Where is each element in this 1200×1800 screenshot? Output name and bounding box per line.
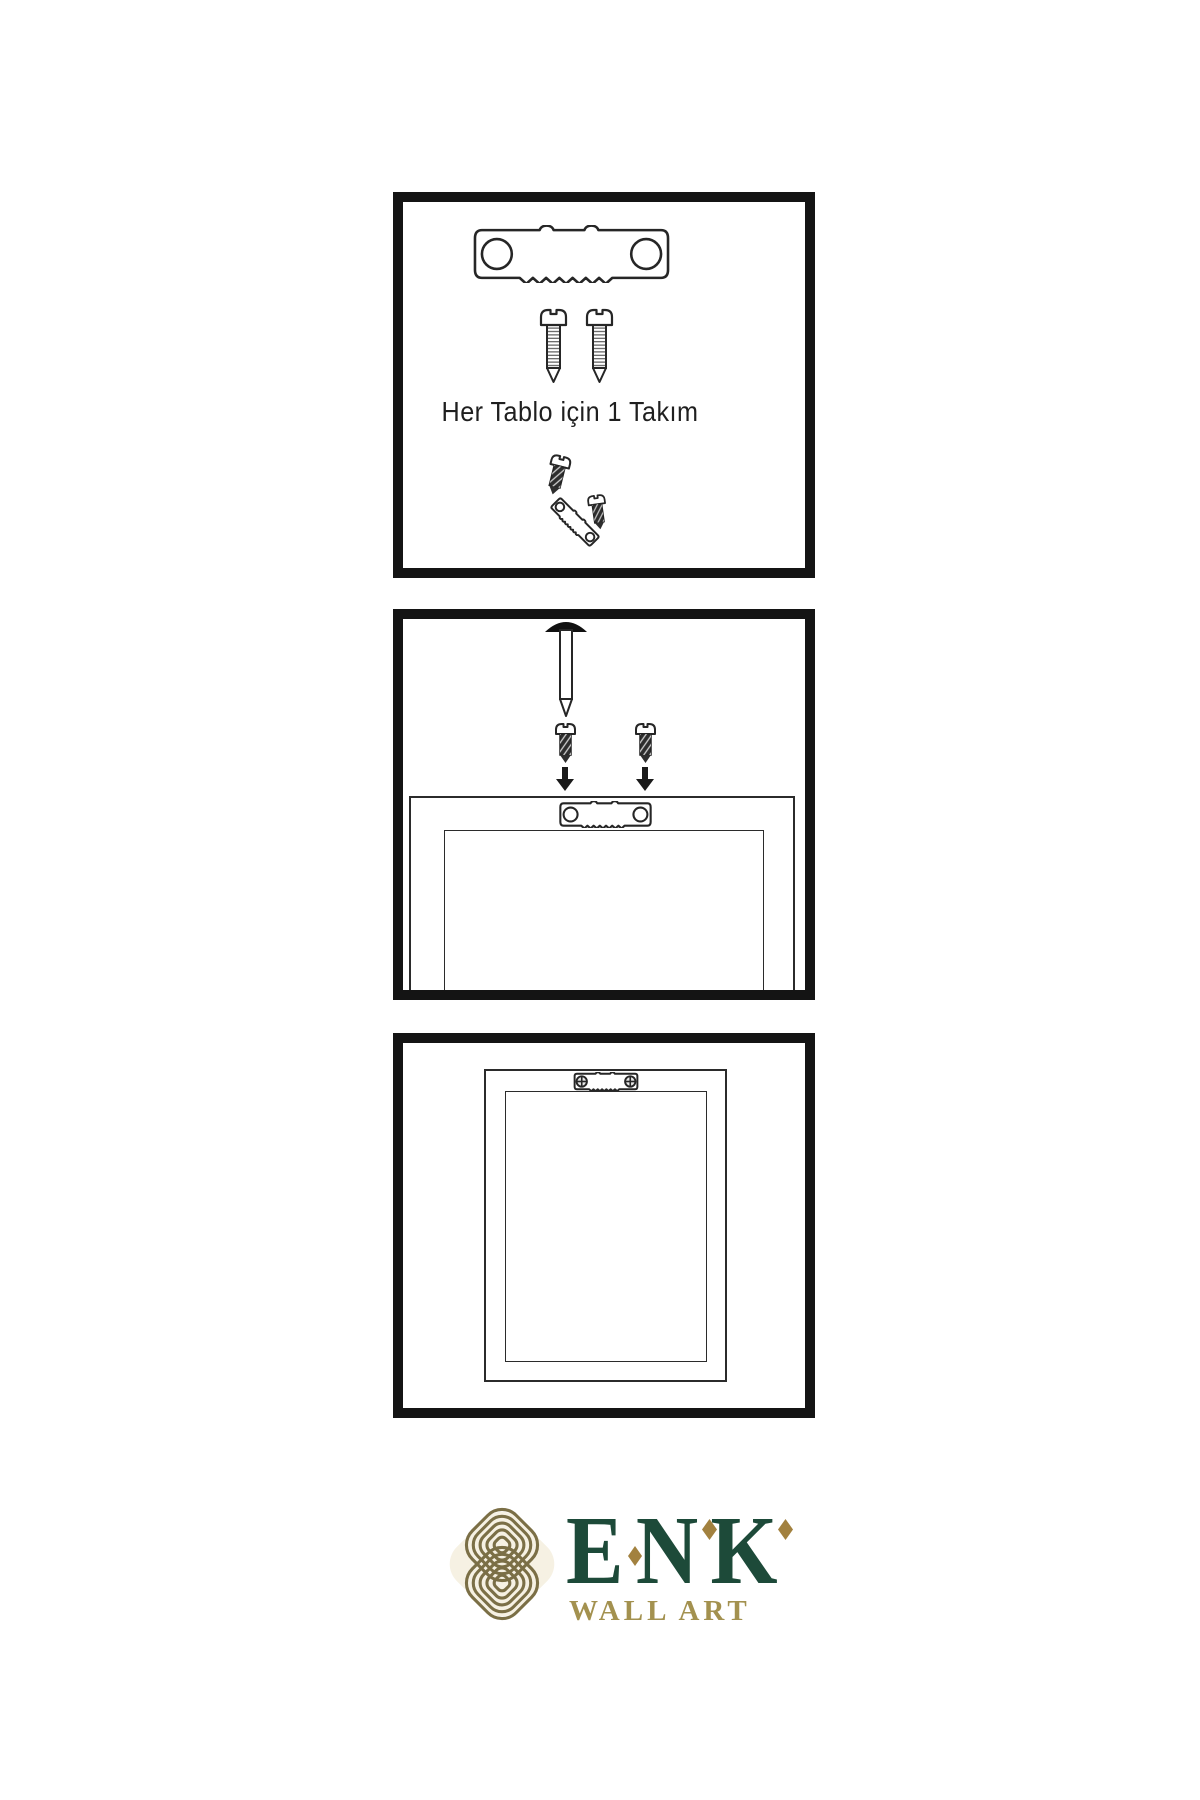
hung-frame-inner-edge <box>505 1091 707 1362</box>
brand-name-text: ENK <box>566 1502 790 1600</box>
screw-dark-icon <box>634 721 657 765</box>
screw-icon <box>538 306 569 386</box>
arrow-down-icon <box>636 767 654 791</box>
step-2-panel <box>393 609 815 1000</box>
wall-nail-icon <box>545 619 587 719</box>
arrow-down-icon <box>556 767 574 791</box>
brand-subtitle-text: WALL ART <box>569 1595 751 1628</box>
infographic-canvas: Her Tablo için 1 Takım <box>0 0 1200 1800</box>
step-1-caption: Her Tablo için 1 Takım <box>393 396 751 428</box>
brand-wordmark: ENK <box>566 1502 826 1602</box>
screw-dark-icon <box>541 451 574 499</box>
screw-icon <box>584 306 615 386</box>
screw-dark-icon <box>585 491 610 533</box>
screw-dark-icon <box>554 721 577 765</box>
step-1-panel: Her Tablo için 1 Takım <box>393 192 815 578</box>
step-3-panel <box>393 1033 815 1418</box>
sawtooth-hanger-screwed-icon <box>573 1072 639 1091</box>
sawtooth-hanger-small-icon <box>553 801 658 828</box>
sawtooth-hanger-icon <box>470 225 673 283</box>
knot-emblem-icon <box>441 1503 563 1625</box>
frame-back-inner-edge <box>444 830 764 1000</box>
